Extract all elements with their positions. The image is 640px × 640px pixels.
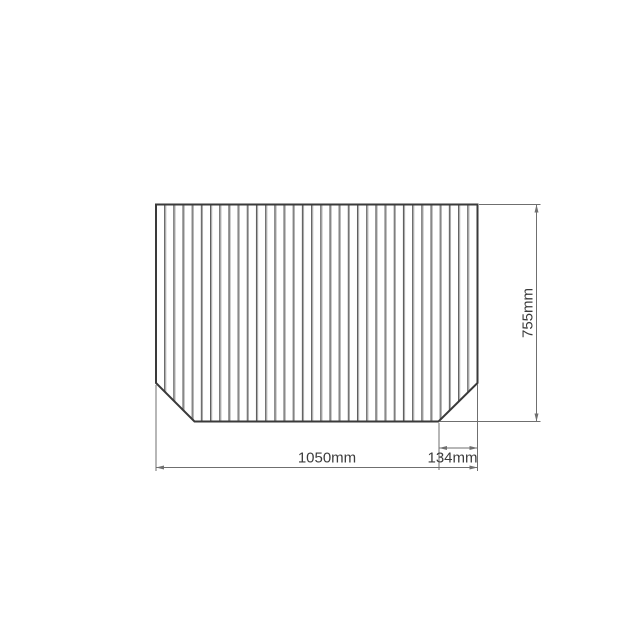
product-dimension-diagram: 755mm 1050mm 134mm [0,0,640,640]
width-dimension-label: 1050mm [298,450,356,467]
arrow-left-icon [156,466,164,470]
arrow-up-icon [535,205,539,213]
dimension-corner-cut: 134mm [427,423,477,470]
height-dimension-label: 755mm [520,288,537,338]
dimension-height: 755mm [440,205,541,422]
lid-outline [156,205,478,422]
corner-cut-dimension-label: 134mm [427,450,477,467]
arrow-down-icon [535,414,539,422]
slat-lines [165,204,469,423]
dimension-drawing-svg: 755mm 1050mm 134mm [0,0,640,640]
